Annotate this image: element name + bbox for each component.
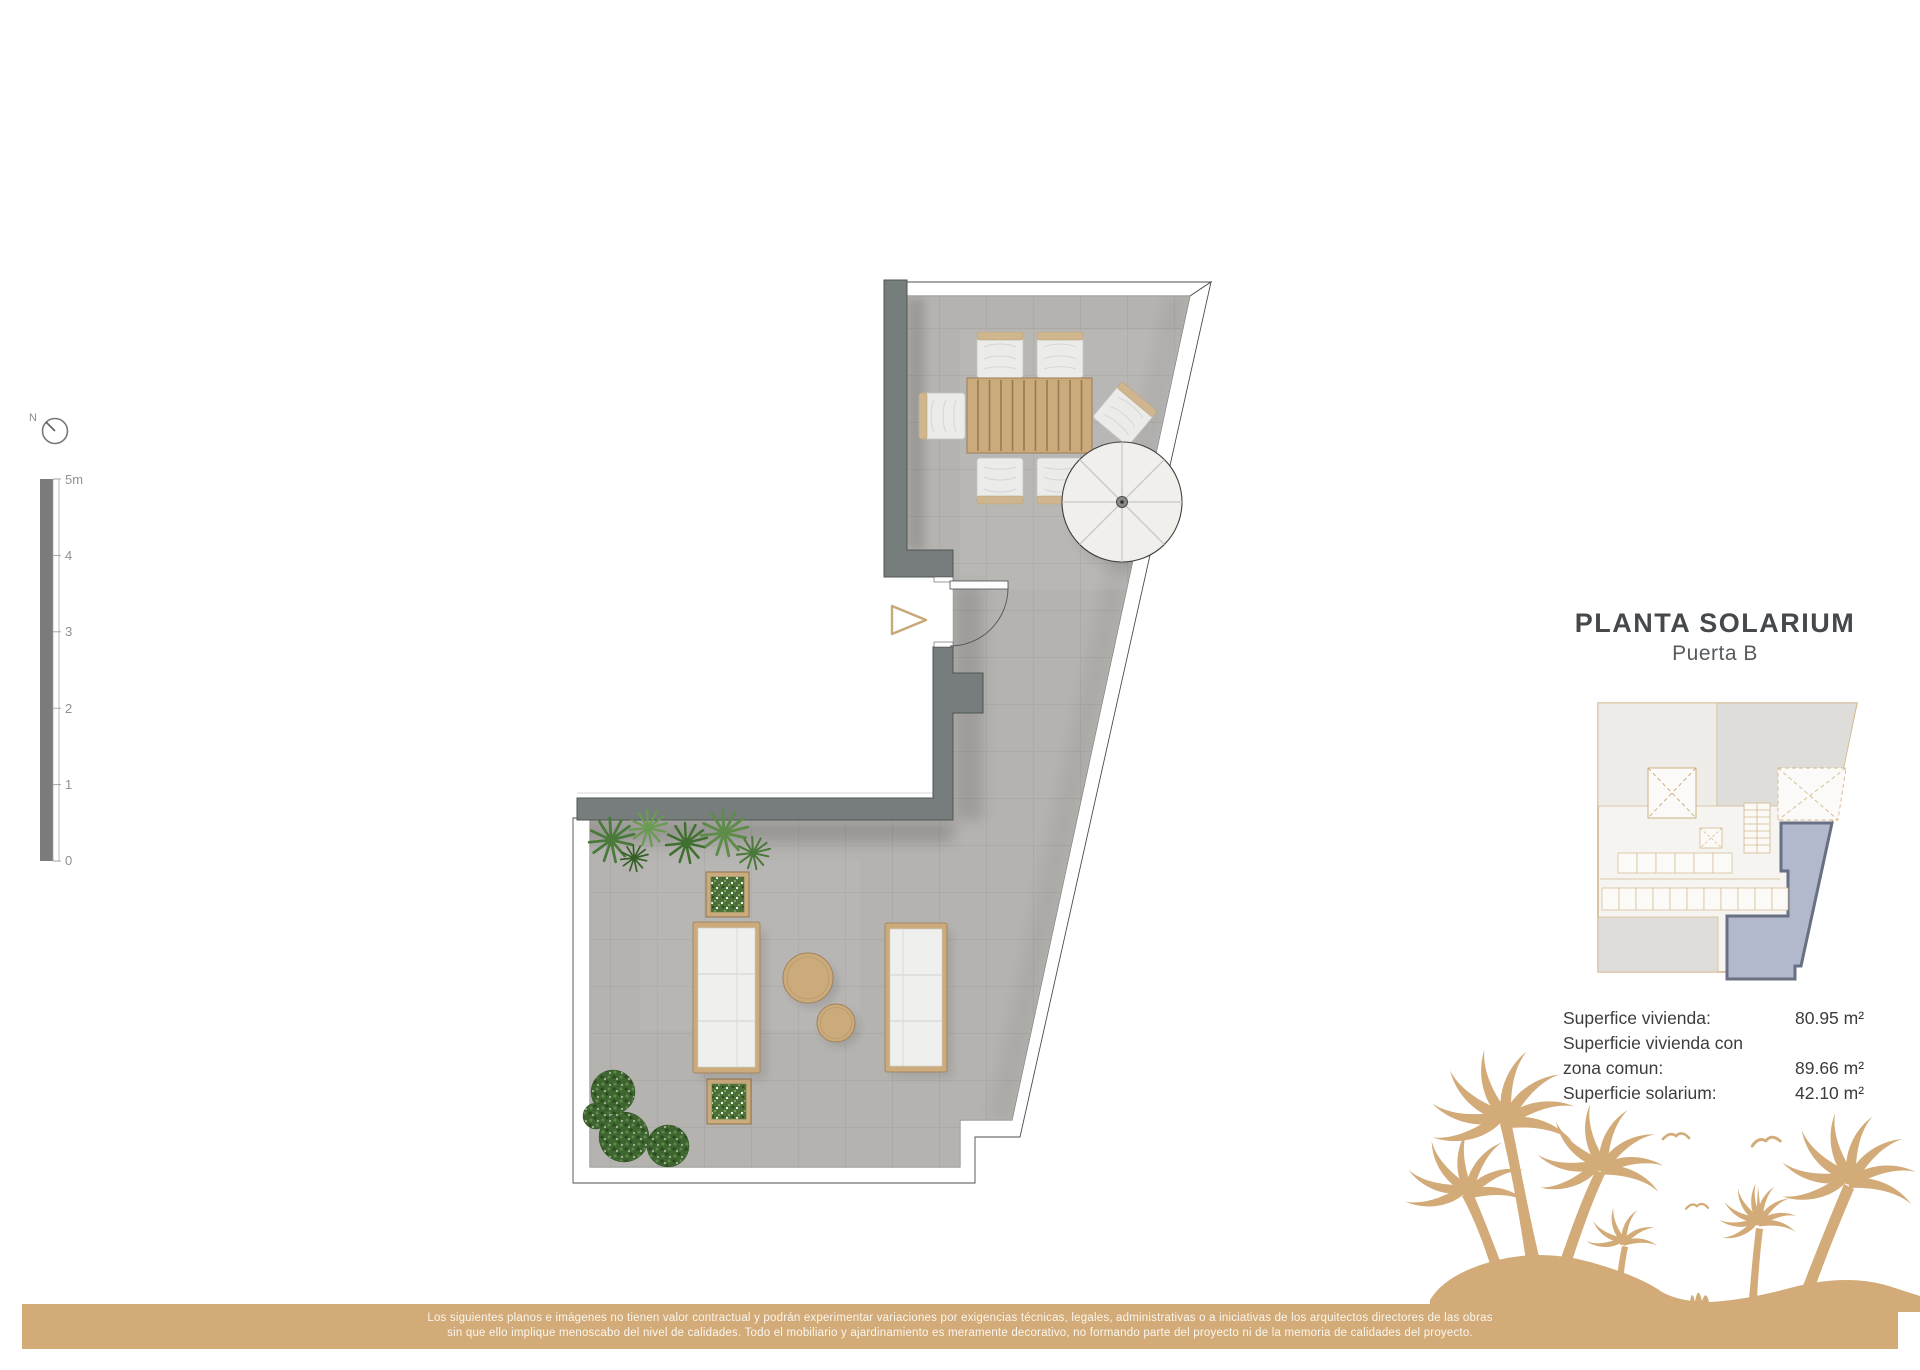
page-title: PLANTA SOLARIUM xyxy=(1480,608,1920,639)
area-row: Superfice vivienda: 80.95 m² xyxy=(1563,1008,1920,1033)
planter-box xyxy=(706,872,749,917)
scale-label-0: 0 xyxy=(65,853,72,868)
dining-chair xyxy=(977,458,1023,504)
bird-icon xyxy=(1663,1133,1780,1208)
sun-lounger xyxy=(885,923,953,1078)
parasol xyxy=(1062,442,1182,562)
dining-chair xyxy=(977,332,1023,378)
scale-label-2: 2 xyxy=(65,701,72,716)
palm-crown xyxy=(1536,1104,1664,1205)
planter-box xyxy=(707,1079,751,1124)
area-value: 89.66 m² xyxy=(1795,1058,1864,1079)
scale-label-5m: 5m xyxy=(65,472,83,487)
palm-crown xyxy=(1430,1048,1575,1157)
area-label: Superficie vivienda con xyxy=(1563,1033,1743,1053)
shaft-square xyxy=(1778,768,1846,820)
scale-label-4: 4 xyxy=(65,548,72,563)
area-value: 80.95 m² xyxy=(1795,1008,1864,1029)
area-label: Superfice vivienda: xyxy=(1563,1008,1711,1028)
north-compass-icon: N xyxy=(29,412,68,444)
dining-chair xyxy=(1037,332,1083,378)
scale-label-1: 1 xyxy=(65,777,72,792)
scale-bar: N 5m 4 3 2 1 0 xyxy=(20,400,110,880)
sun-lounger xyxy=(693,922,767,1080)
plan-sheet: N 5m 4 3 2 1 0 xyxy=(0,0,1920,1370)
key-plan xyxy=(1580,695,1870,990)
solarium-floor-plan xyxy=(540,260,1240,1210)
footer-disclaimer: Los siguientes planos e imágenes no tien… xyxy=(22,1304,1898,1349)
scale-label-3: 3 xyxy=(65,624,72,639)
title-block: PLANTA SOLARIUM Puerta B xyxy=(1480,608,1920,666)
dining-chair xyxy=(919,393,965,439)
north-label: N xyxy=(29,412,37,424)
dining-table xyxy=(967,378,1092,453)
scale-bar-graphic: 5m 4 3 2 1 0 xyxy=(40,472,83,868)
page-subtitle: Puerta B xyxy=(1480,642,1920,666)
area-label: zona comun: xyxy=(1563,1058,1663,1078)
entry-arrow-icon xyxy=(892,606,926,634)
stairs xyxy=(1744,803,1770,853)
footer-line-1: Los siguientes planos e imágenes no tien… xyxy=(22,1311,1898,1326)
footer-line-2: sin que ello implique menoscabo del nive… xyxy=(22,1326,1898,1341)
area-row: Superficie vivienda con xyxy=(1563,1033,1920,1058)
shaft-square xyxy=(1648,768,1696,818)
